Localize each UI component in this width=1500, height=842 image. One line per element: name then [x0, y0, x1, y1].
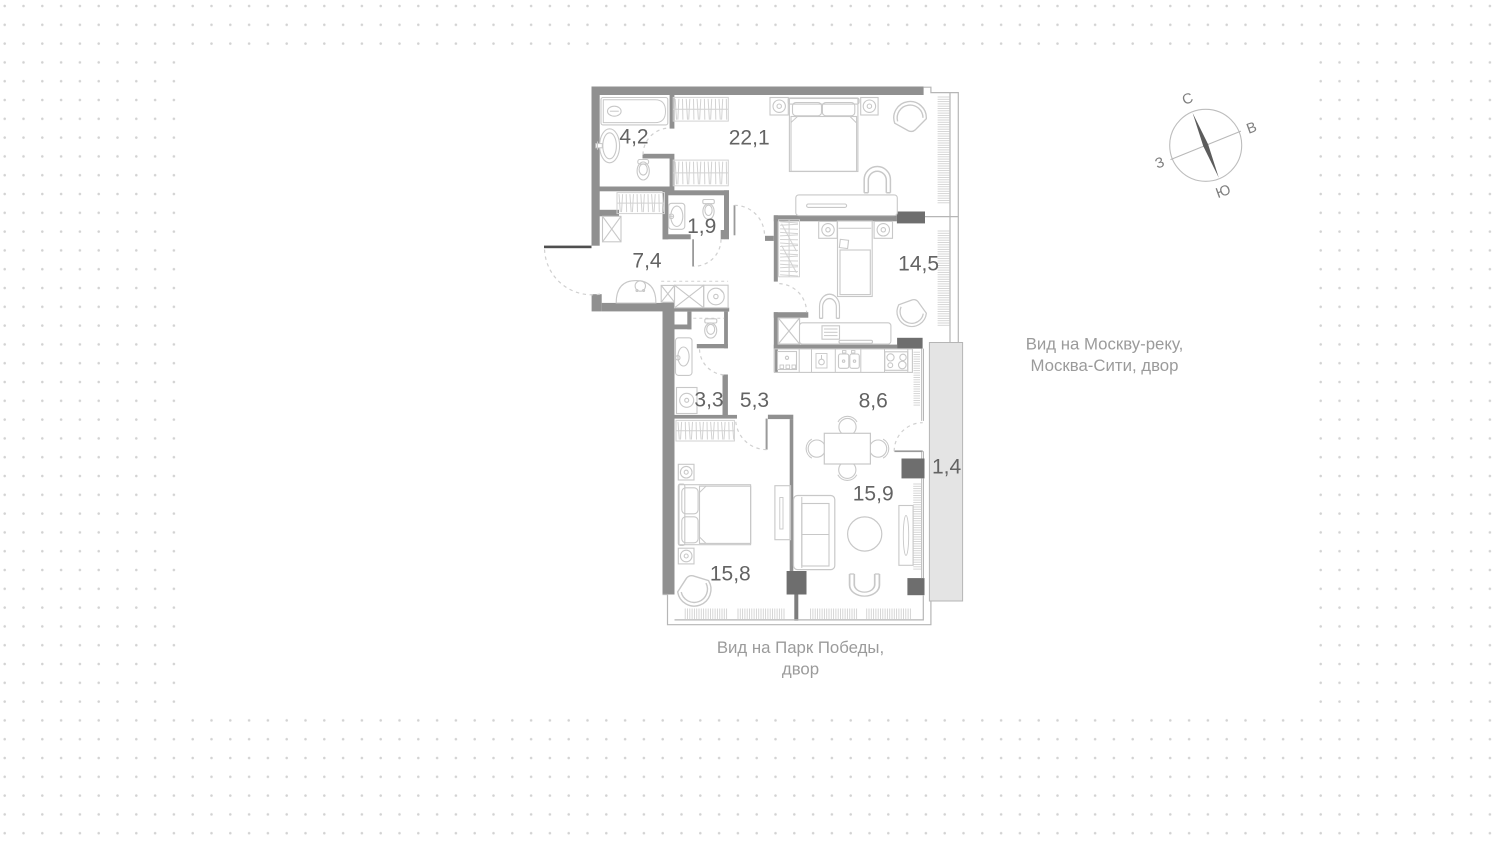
svg-text:Москва-Сити, двор: Москва-Сити, двор [1031, 356, 1179, 375]
svg-text:14,5: 14,5 [898, 253, 939, 276]
svg-text:5,3: 5,3 [740, 389, 769, 412]
svg-text:1,4: 1,4 [932, 456, 962, 479]
svg-text:Вид на Москву-реку,: Вид на Москву-реку, [1026, 335, 1184, 354]
svg-text:15,8: 15,8 [710, 563, 751, 586]
svg-text:двор: двор [782, 660, 819, 679]
svg-text:1,9: 1,9 [687, 215, 716, 238]
svg-text:Вид на Парк Победы,: Вид на Парк Победы, [717, 638, 884, 657]
svg-text:15,9: 15,9 [853, 483, 894, 506]
svg-text:3,3: 3,3 [694, 389, 723, 412]
svg-text:22,1: 22,1 [729, 126, 770, 149]
svg-text:7,4: 7,4 [632, 250, 662, 273]
svg-text:8,6: 8,6 [859, 390, 888, 413]
svg-text:4,2: 4,2 [619, 126, 648, 149]
